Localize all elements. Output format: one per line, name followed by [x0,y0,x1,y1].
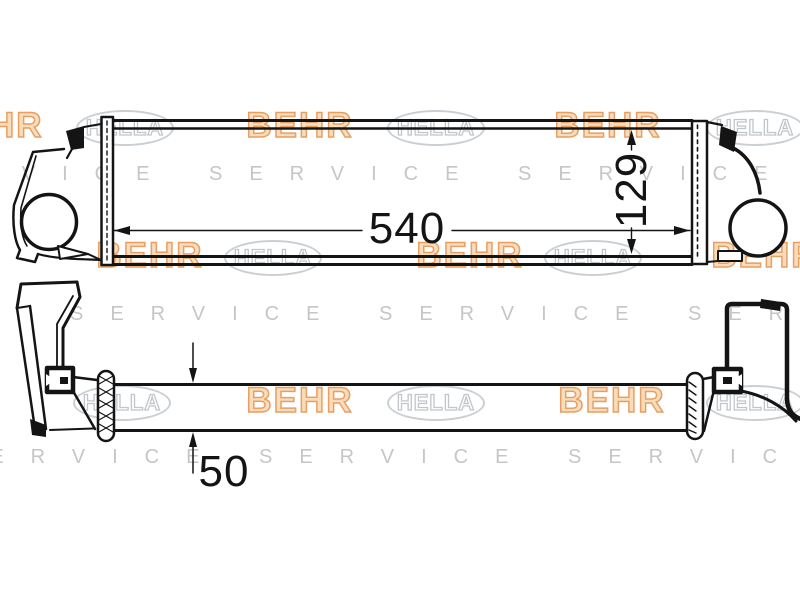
left-neck-bottom [50,429,93,431]
inlet-funnel-inner [57,296,73,368]
dim-540-label: 540 [369,204,445,253]
dimension-50: 50 [189,343,249,496]
right-outlet-assembly [703,299,800,431]
outlet-flange-tab [760,299,781,311]
right-tank-foot [718,251,742,261]
dim-540-arrow-left [114,226,130,235]
right-bracket-link [707,122,722,125]
right-header-plate [692,121,707,264]
right-tank [707,122,786,262]
top-view: 50 [17,282,800,496]
right-neck-diagonal [704,390,714,431]
outlet-flange [727,304,800,421]
left-bracket-stem [67,149,72,158]
inlet-funnel-right [63,282,80,369]
dim-50-arrow-bottom [189,432,197,447]
dimension-129: 129 [607,130,656,254]
right-clip-dash [723,377,732,384]
left-bracket-link [84,124,101,127]
left-seal-body [98,371,114,441]
side-bracket-top [17,306,30,308]
drawing-canvas: BEHR HELLA BEHR HELLA BEHR HELLA SERVICE… [0,0,800,600]
right-port-circle [730,200,786,256]
intercooler-drawing-svg: 540 129 [0,0,800,600]
left-tank [13,124,101,262]
dimension-540: 540 [114,204,690,253]
left-neck-top [73,377,97,380]
dim-129-arrow-bottom [627,239,636,254]
left-clip-dash [60,377,68,384]
right-tank-neck [733,148,760,193]
dim-50-arrow-top [189,368,197,383]
side-bracket-foot [30,419,46,437]
dim-129-label: 129 [607,152,656,228]
left-neck-diagonal [73,391,95,429]
right-foot-link [707,261,718,262]
right-end-seal [687,373,703,439]
left-port-circle [22,195,77,250]
dim-50-label: 50 [199,447,250,496]
front-view: 540 129 [13,117,786,265]
dim-540-arrow-right [674,226,690,235]
dim-129-arrow-top [627,130,636,145]
left-tank-foot [58,246,88,259]
left-inlet-assembly [17,282,97,437]
left-end-seal [98,371,114,441]
left-mount-bracket [66,126,84,150]
technical-drawing: 540 129 [0,0,800,600]
